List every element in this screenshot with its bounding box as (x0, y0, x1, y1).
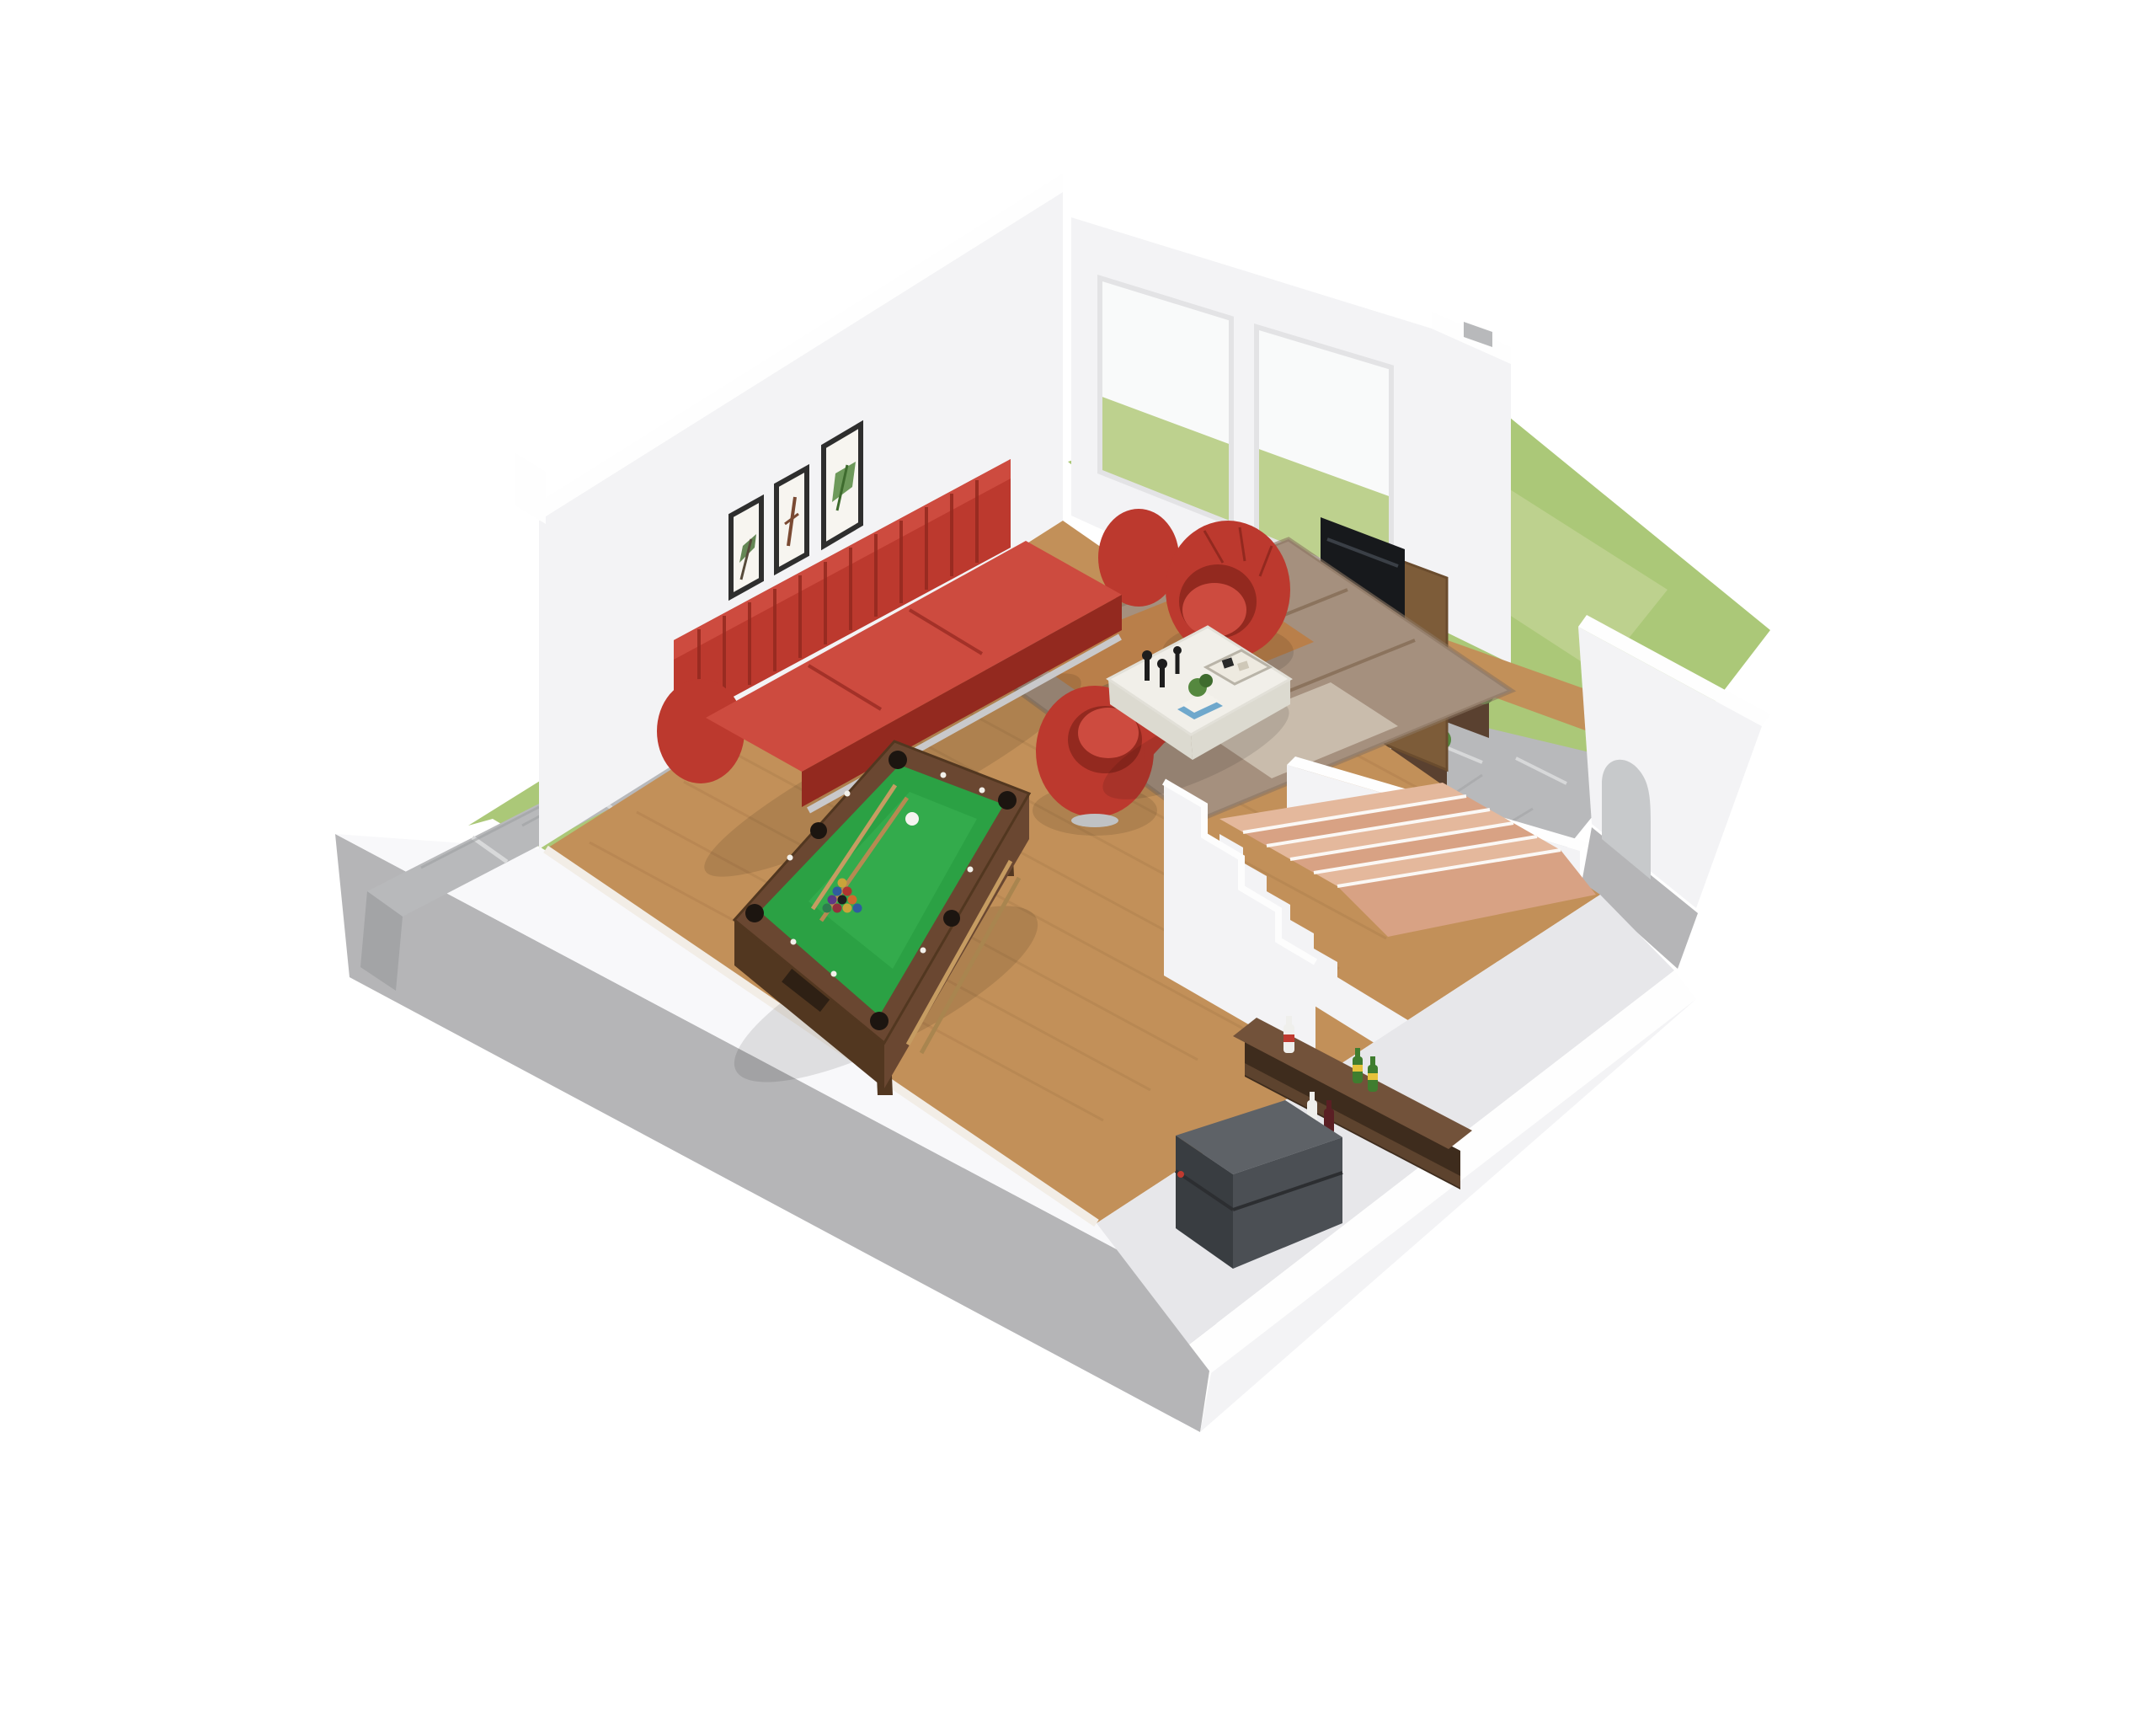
fridge-indicator-light (1177, 1171, 1184, 1178)
bottle-label-yellow (1353, 1065, 1363, 1072)
bottle-neck (1310, 1092, 1315, 1102)
plant-foliage (1199, 674, 1213, 687)
bottle-label-yellow (1368, 1073, 1378, 1080)
cue-ball (905, 812, 919, 826)
bottle-neck (1326, 1100, 1331, 1110)
chair-swivel-base (1071, 814, 1118, 827)
back-wall-end-cap (515, 453, 546, 524)
render-canvas (0, 0, 2156, 1732)
chair-cushion (1182, 583, 1246, 637)
bottle-neck (1286, 1016, 1292, 1026)
bottle-neck (1355, 1048, 1360, 1058)
door-mullion (1231, 318, 1257, 534)
floorplan-3d-render (0, 0, 2156, 1732)
bottle-label-red (1283, 1034, 1294, 1042)
bottle-neck (1370, 1056, 1375, 1066)
